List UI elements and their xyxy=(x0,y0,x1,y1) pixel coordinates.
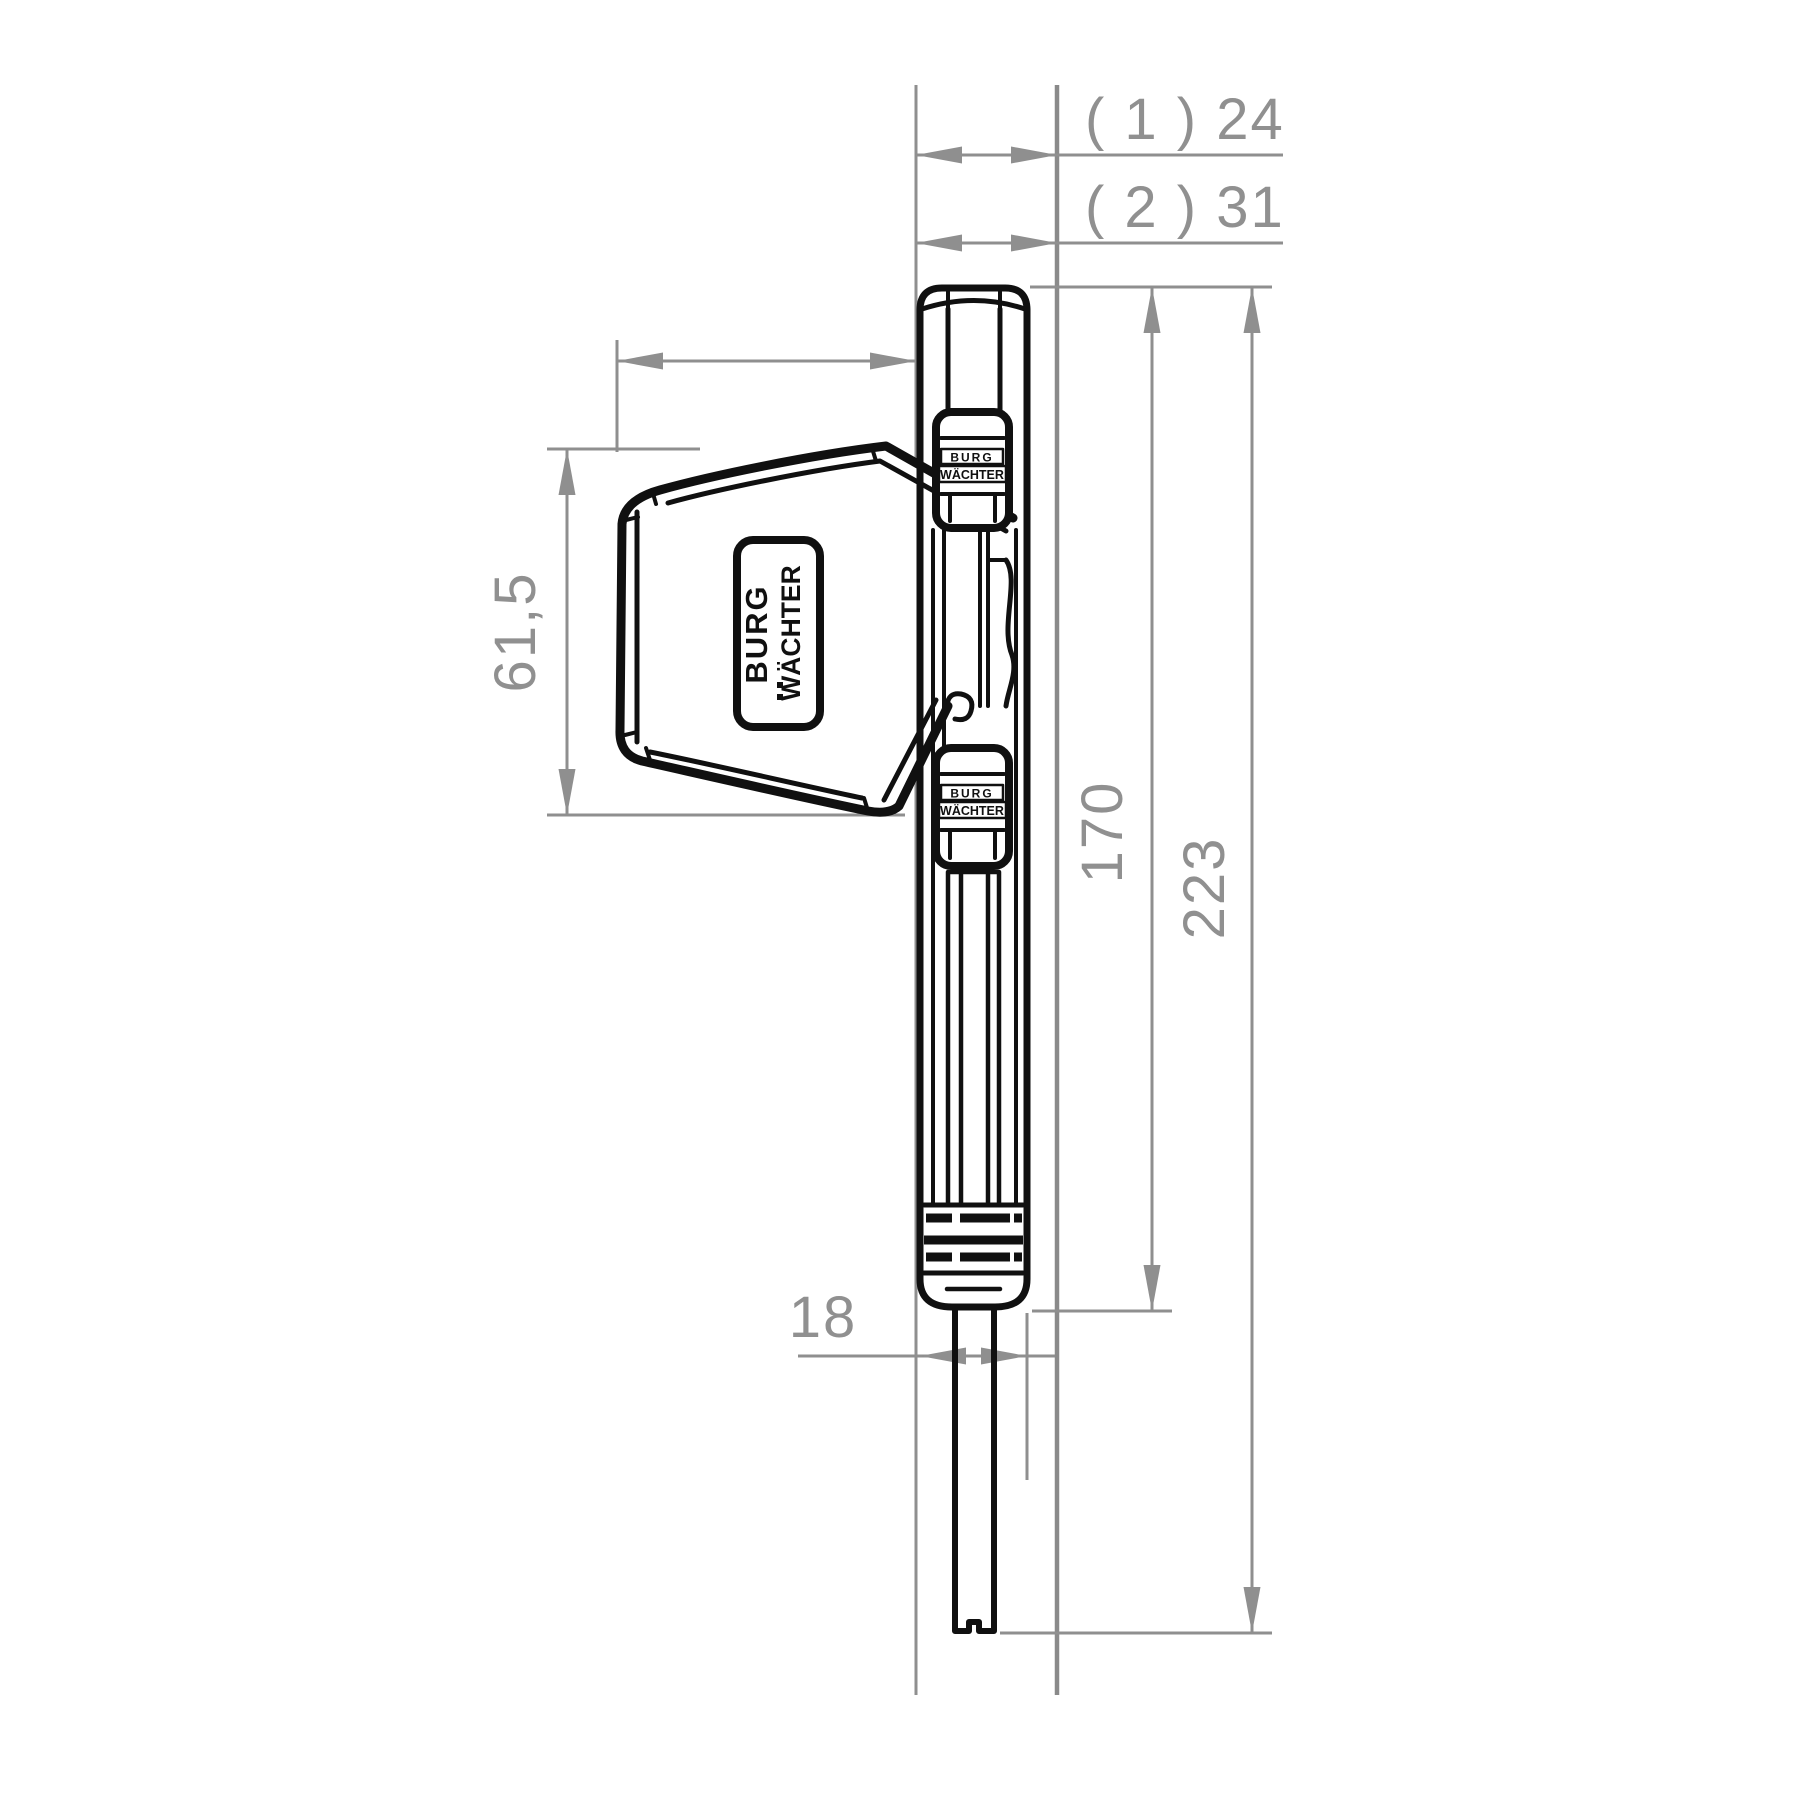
dim1-label: ( 1 ) 24 xyxy=(1085,87,1285,152)
head-depth-arrow-right xyxy=(870,353,916,370)
head-logo-umlaut-dot2 xyxy=(777,694,783,700)
technical-drawing-page: ( 1 ) 24 ( 2 ) 31 170 223 61,5 xyxy=(0,0,1800,1800)
dim223-arrow-bottom xyxy=(1244,1587,1261,1633)
body-top-cap-arc xyxy=(922,301,1025,310)
lock-dimension-drawing: ( 1 ) 24 ( 2 ) 31 170 223 61,5 xyxy=(0,0,1800,1800)
head-logo-umlaut-dot1 xyxy=(777,682,783,688)
dim1-arrow-left xyxy=(916,147,962,164)
top-clamp-burg: BURG xyxy=(950,451,993,465)
dim2-label: ( 2 ) 31 xyxy=(1085,175,1285,240)
dim223-label: 223 xyxy=(1172,837,1237,940)
lower-clamp-wachter: WÄCHTER xyxy=(940,803,1004,818)
joint-latch-curve xyxy=(1006,560,1014,706)
top-clamp-wachter: WÄCHTER xyxy=(940,467,1004,482)
body-upper-channel xyxy=(948,309,1000,412)
dim170-arrow-top xyxy=(1144,287,1161,333)
dim1-arrow-right xyxy=(1011,147,1057,164)
dim2-arrow-left xyxy=(916,235,962,252)
head-logo-wachter: WÄCHTER xyxy=(776,565,806,700)
dim18-arrow-left xyxy=(920,1348,966,1365)
dim223-arrow-top xyxy=(1244,287,1261,333)
lower-clamp-burg: BURG xyxy=(950,787,993,801)
slider-channel xyxy=(948,872,999,1205)
top-clamp: BURG WÄCHTER xyxy=(936,412,1009,528)
head-depth-arrow-left xyxy=(617,353,663,370)
dim18-arrow-right xyxy=(981,1348,1027,1365)
head-logo-burg: BURG xyxy=(739,584,774,683)
dim18-label: 18 xyxy=(789,1285,858,1350)
dim615-arrow-bottom xyxy=(559,769,576,815)
dim615-label: 61,5 xyxy=(483,572,548,693)
dim170-arrow-bottom xyxy=(1144,1265,1161,1311)
lower-clamp: BURG WÄCHTER xyxy=(936,748,1009,866)
dim2-arrow-right xyxy=(1011,235,1057,252)
dim170-label: 170 xyxy=(1070,781,1135,884)
dimension-layer: ( 1 ) 24 ( 2 ) 31 170 223 61,5 xyxy=(483,85,1285,1695)
dim615-arrow-top xyxy=(559,449,576,495)
